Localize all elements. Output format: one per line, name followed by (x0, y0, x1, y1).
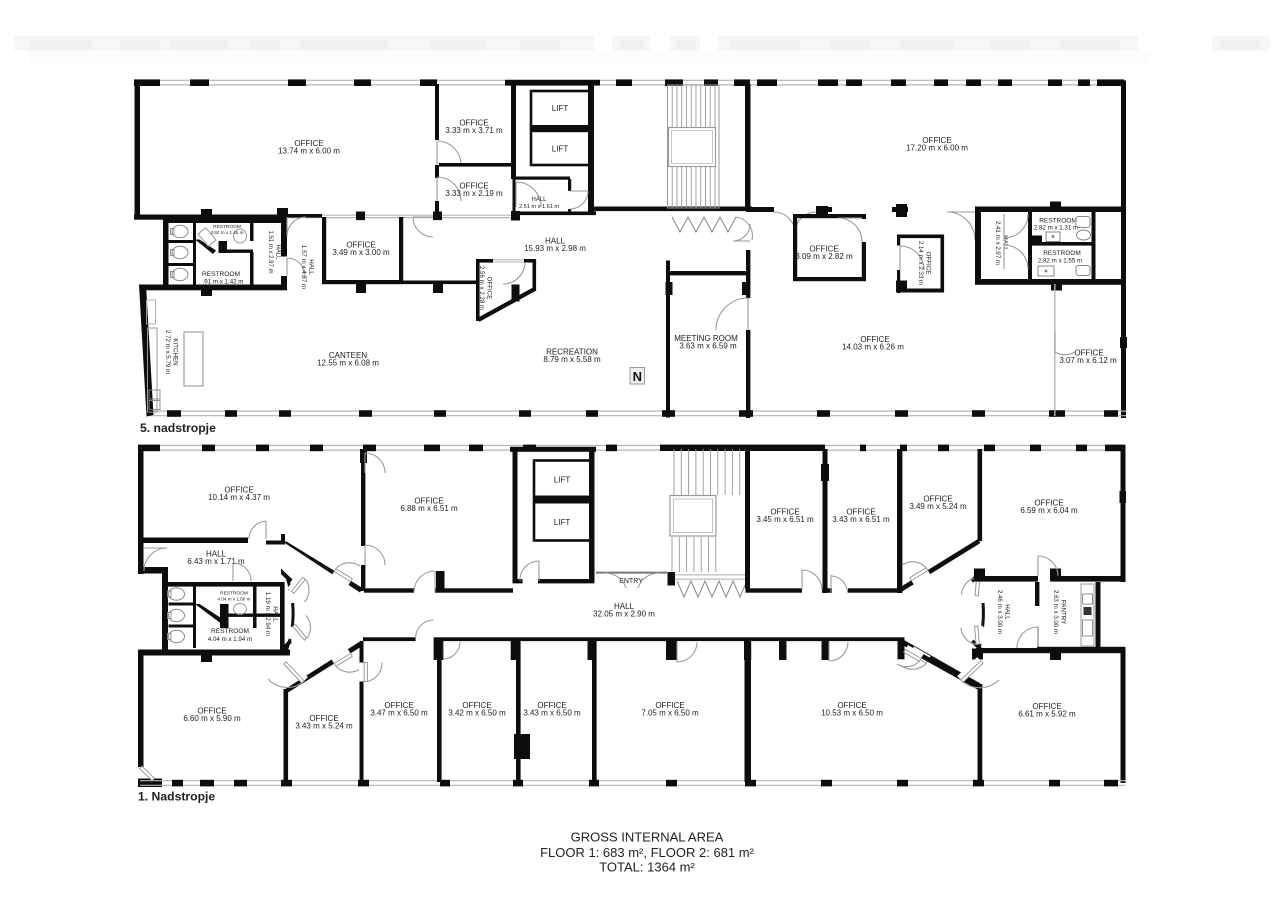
svg-text:3.33 m x 2.19 m: 3.33 m x 2.19 m (445, 189, 503, 198)
svg-text:1.51 m x 2.97 m: 1.51 m x 2.97 m (267, 230, 273, 273)
svg-text:OFFICE: OFFICE (925, 252, 932, 275)
svg-text:RESTROOM: RESTROOM (1039, 218, 1077, 225)
svg-text:5. nadstropje: 5. nadstropje (140, 421, 216, 435)
svg-text:3.92 m x 1.45 m: 3.92 m x 1.45 m (211, 230, 244, 235)
svg-text:2.14 m x 2.33 m: 2.14 m x 2.33 m (917, 241, 924, 285)
svg-text:RESTROOM: RESTROOM (211, 628, 249, 635)
svg-text:2.63 m x 3.00 m: 2.63 m x 3.00 m (1052, 590, 1059, 634)
svg-text:RESTROOM: RESTROOM (202, 271, 240, 278)
svg-text:4.04 m x 1.94 m: 4.04 m x 1.94 m (208, 636, 252, 643)
svg-text:TOTAL: 1364 m²: TOTAL: 1364 m² (599, 860, 695, 875)
svg-text:2.56 m x 2.28 m: 2.56 m x 2.28 m (478, 266, 485, 310)
svg-text:HALL: HALL (272, 606, 279, 622)
svg-text:KITCHEN: KITCHEN (172, 338, 179, 365)
svg-text:3.07 m x 6.12 m: 3.07 m x 6.12 m (1059, 356, 1117, 365)
svg-text:3.42 m x 6.50 m: 3.42 m x 6.50 m (448, 709, 506, 718)
svg-text:PANTRY: PANTRY (1060, 600, 1067, 625)
svg-text:3.63 m x 6.59 m: 3.63 m x 6.59 m (679, 342, 737, 351)
svg-text:14.03 m x 6.26 m: 14.03 m x 6.26 m (842, 343, 904, 352)
svg-text:1. Nadstropje: 1. Nadstropje (138, 790, 215, 804)
svg-text:6.60 m x 5.90 m: 6.60 m x 5.90 m (183, 714, 241, 723)
svg-text:3.45 m x 6.51 m: 3.45 m x 6.51 m (756, 515, 814, 524)
svg-text:GROSS INTERNAL AREA: GROSS INTERNAL AREA (571, 830, 724, 845)
svg-text:10.14 m x 4.37 m: 10.14 m x 4.37 m (208, 493, 270, 502)
svg-text:1.57 m x 4.87 m: 1.57 m x 4.87 m (300, 245, 307, 289)
svg-text:RESTROOM: RESTROOM (1043, 250, 1081, 257)
svg-text:3.49 m x 3.00 m: 3.49 m x 3.00 m (332, 248, 390, 257)
svg-text:6.61 m x 5.92 m: 6.61 m x 5.92 m (1018, 710, 1076, 719)
svg-text:6.59 m x 6.04 m: 6.59 m x 6.04 m (1020, 506, 1078, 515)
svg-text:2.51 m x 1.61 m: 2.51 m x 1.61 m (519, 204, 559, 210)
svg-text:10.53 m x 6.50 m: 10.53 m x 6.50 m (821, 709, 883, 718)
svg-text:4.04 m x 1.60 m: 4.04 m x 1.60 m (218, 597, 251, 602)
svg-text:LIFT: LIFT (552, 104, 569, 113)
svg-text:2.72 m x 5.79 m: 2.72 m x 5.79 m (164, 330, 171, 374)
svg-text:17.20 m x 6.00 m: 17.20 m x 6.00 m (906, 143, 968, 152)
svg-text:3.43 m x 6.51 m: 3.43 m x 6.51 m (832, 515, 890, 524)
svg-text:15.93 m x 2.98 m: 15.93 m x 2.98 m (524, 244, 586, 253)
svg-text:8.79 m x 5.58 m: 8.79 m x 5.58 m (543, 355, 601, 364)
svg-text:2.82 m x 1.31 m: 2.82 m x 1.31 m (1034, 225, 1078, 232)
svg-text:3.43 m x 5.24 m: 3.43 m x 5.24 m (295, 722, 353, 731)
svg-text:6.43 m x 1.71 m: 6.43 m x 1.71 m (187, 557, 245, 566)
svg-text:3.47 m x 6.50 m: 3.47 m x 6.50 m (370, 709, 428, 718)
svg-text:6.88 m x 6.51 m: 6.88 m x 6.51 m (400, 504, 458, 513)
svg-text:HALL: HALL (308, 259, 315, 275)
svg-text:1.19 m x 2.94 m: 1.19 m x 2.94 m (264, 592, 271, 636)
svg-text:3.33 m x 3.71 m: 3.33 m x 3.71 m (445, 126, 503, 135)
svg-text:LIFT: LIFT (554, 518, 571, 527)
svg-text:3.49 m x 5.24 m: 3.49 m x 5.24 m (909, 502, 967, 511)
svg-text:32.05 m x 2.90 m: 32.05 m x 2.90 m (593, 610, 655, 619)
svg-text:FLOOR 1: 683 m², FLOOR 2: 681: FLOOR 1: 683 m², FLOOR 2: 681 m² (540, 845, 755, 860)
svg-text:HALL: HALL (275, 244, 281, 260)
svg-text:3.43 m x 6.50 m: 3.43 m x 6.50 m (523, 709, 581, 718)
svg-text:2.41 m x 2.97 m: 2.41 m x 2.97 m (994, 221, 1001, 265)
svg-text:LIFT: LIFT (554, 476, 571, 485)
svg-text:.91 m x 1.42 m: .91 m x 1.42 m (203, 279, 244, 286)
svg-text:OFFICE: OFFICE (486, 277, 493, 300)
svg-text:HALL: HALL (1004, 604, 1011, 620)
svg-text:13.74 m x 6.00 m: 13.74 m x 6.00 m (278, 147, 340, 156)
svg-text:12.55 m x 6.08 m: 12.55 m x 6.08 m (317, 359, 379, 368)
svg-text:3.09 m x 2.82 m: 3.09 m x 2.82 m (795, 252, 853, 261)
svg-text:7.05 m x 6.50 m: 7.05 m x 6.50 m (641, 709, 699, 718)
svg-text:N: N (633, 369, 642, 384)
svg-text:LIFT: LIFT (552, 145, 569, 154)
svg-text:2.82 m x 1.55 m: 2.82 m x 1.55 m (1038, 258, 1082, 265)
svg-text:2.46 m x 3.00 m: 2.46 m x 3.00 m (996, 590, 1003, 634)
